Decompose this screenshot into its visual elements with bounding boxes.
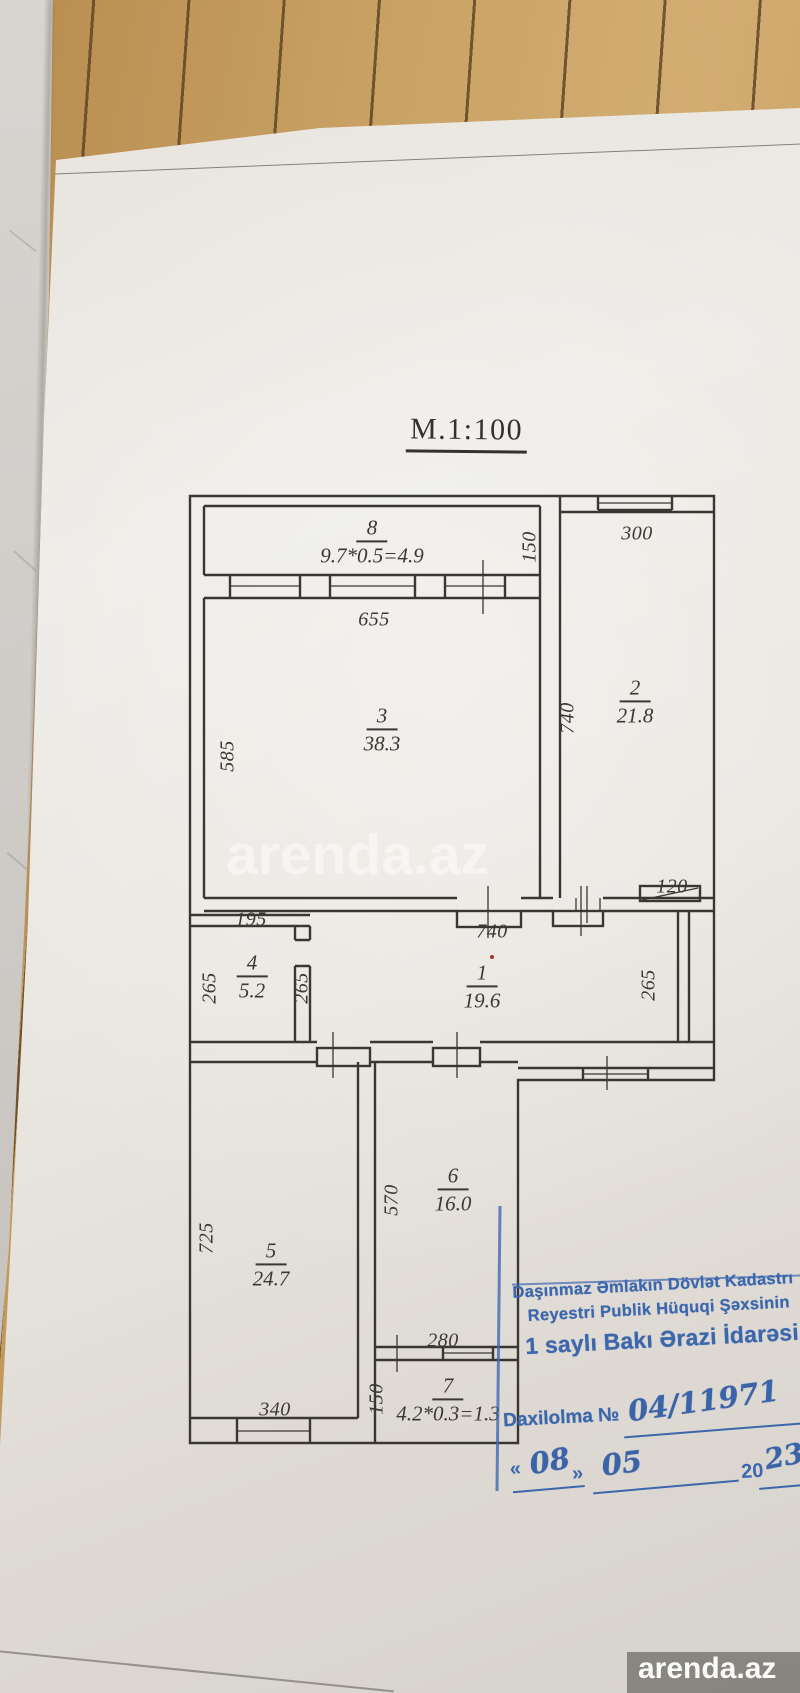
stamp-underline	[593, 1480, 739, 1495]
room-8-area: 9.7*0.5=4.9	[320, 543, 423, 568]
door-symbol	[553, 911, 603, 926]
room-5-area: 24.7	[253, 1266, 290, 1291]
photo-of-floor-plan-document: { "plan": { "title": "M.1:100", "rooms":…	[0, 0, 800, 1693]
hall-top-wall	[204, 898, 714, 911]
document-paper: M.1:100	[0, 0, 800, 1693]
room-2-area: 21.8	[617, 703, 654, 728]
stamp-entry-label: Daxilolma №	[503, 1404, 620, 1432]
dim-585-room3: 585	[217, 740, 240, 772]
room-6-number: 6	[438, 1164, 469, 1190]
faint-writing-mark	[9, 230, 37, 253]
stamp-underline	[759, 1484, 800, 1490]
paper-fold-line	[0, 1650, 394, 1692]
stamp-underline	[513, 1485, 585, 1493]
dim-150-room7: 150	[366, 1383, 389, 1415]
registry-stamp: Daşınmaz Əmlakın Dövlət Kadastrı Reyestr…	[488, 1266, 800, 1523]
room-4-area: 5.2	[237, 978, 268, 1003]
room-7-number: 7	[433, 1374, 464, 1400]
dim-655-room3: 655	[358, 609, 390, 632]
dim-570-room6: 570	[381, 1184, 404, 1216]
stamp-close-quote: »	[572, 1462, 584, 1486]
dim-280-window: 280	[427, 1330, 459, 1353]
faint-writing-mark	[6, 852, 27, 870]
dim-740-hall: 740	[476, 921, 508, 944]
room-1-area: 19.6	[464, 988, 501, 1013]
room-2-label: 2 21.8	[617, 676, 654, 727]
dim-300-room2: 300	[621, 523, 653, 546]
room-5-label: 5 24.7	[253, 1239, 290, 1290]
scale-title: M.1:100	[406, 412, 527, 453]
dim-740-room2: 740	[557, 702, 580, 734]
stamp-open-quote: «	[509, 1458, 521, 1482]
room-7-area: 4.2*0.3=1.3	[396, 1401, 499, 1426]
room-6-label: 6 16.0	[435, 1164, 472, 1215]
dim-265-hall-left: 265	[291, 972, 314, 1004]
room-1-label: 1 19.6	[464, 961, 501, 1012]
dim-725-room5: 725	[196, 1222, 219, 1254]
room-3-area: 38.3	[364, 731, 401, 756]
room-4-label: 4 5.2	[237, 951, 268, 1002]
room-1-number: 1	[467, 961, 498, 987]
dim-120-vent: 120	[656, 876, 688, 899]
dim-150-balcony: 150	[519, 531, 542, 563]
dim-265-hall-right: 265	[638, 969, 661, 1001]
room-5-number: 5	[256, 1239, 287, 1265]
bottom-watermark-text: arenda.az	[627, 1652, 800, 1686]
stamp-day-handwritten: 08	[527, 1441, 573, 1481]
room-2-number: 2	[620, 676, 651, 702]
stamp-entry-number-handwritten: 04/11971	[626, 1373, 781, 1428]
room-3-number: 3	[367, 704, 398, 730]
dim-195-room4: 195	[235, 909, 267, 932]
room-4-number: 4	[237, 951, 268, 977]
red-ink-dot	[490, 955, 494, 959]
dim-340-room5: 340	[259, 1399, 291, 1422]
stamp-year-handwritten: 23	[762, 1436, 800, 1476]
room-8-number: 8	[357, 516, 388, 542]
room-8-label: 8 9.7*0.5=4.9	[320, 516, 423, 567]
door-symbol	[317, 1048, 370, 1066]
room-3-label: 3 38.3	[364, 704, 401, 755]
hall-right-wall	[678, 911, 689, 1042]
stamp-year-prefix: 20	[741, 1460, 764, 1484]
dim-265-room4: 265	[199, 972, 222, 1004]
stamp-line-3: 1 saylı Bakı Ərazi İdarəsi	[525, 1319, 800, 1360]
room-7-label: 7 4.2*0.3=1.3	[396, 1374, 499, 1425]
bottom-watermark-bar: arenda.az	[627, 1652, 800, 1693]
room-6-area: 16.0	[435, 1191, 472, 1216]
center-watermark: arenda.az	[226, 822, 489, 888]
stamp-month-handwritten: 05	[600, 1444, 644, 1483]
